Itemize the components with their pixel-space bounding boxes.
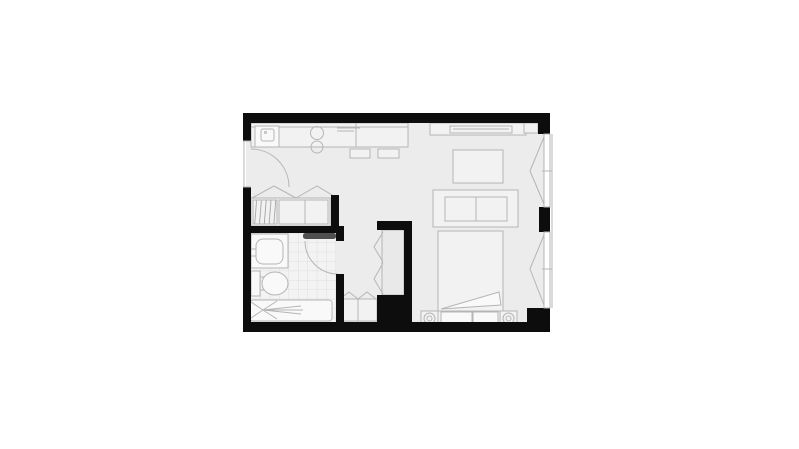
tv-table: [453, 150, 503, 183]
wall-bathroom-right-upper: [336, 226, 344, 241]
sink-faucet-icon: [264, 131, 267, 134]
floor-plan-drawing: [0, 0, 799, 449]
wall-wardrobe-bottom: [377, 295, 404, 332]
toilet-bowl: [262, 272, 288, 295]
bar-stool-right: [378, 149, 399, 158]
wall-right-mid-block: [539, 207, 550, 232]
wall-wardrobe-right: [404, 221, 412, 332]
wall-closet-stub: [331, 195, 339, 226]
closet-shelves-hatch: [253, 200, 277, 224]
wall-top-right-block: [538, 113, 550, 134]
floor-plan-canvas: [0, 0, 799, 449]
wall-top: [243, 113, 550, 123]
window-lower-glazing: [544, 232, 550, 308]
wall-bathroom-right-lower: [336, 274, 344, 332]
desk-end-cabinet: [524, 123, 538, 133]
bathroom-door-leaf: [303, 233, 336, 239]
wall-left-upper: [243, 113, 251, 141]
bar-stool-left: [350, 149, 370, 158]
wardrobe-fill: [382, 230, 404, 295]
wall-bathroom-top: [243, 226, 344, 233]
wall-left-lower: [243, 187, 251, 332]
wall-bottom-right-block: [527, 308, 550, 332]
toilet-tank: [251, 271, 260, 296]
